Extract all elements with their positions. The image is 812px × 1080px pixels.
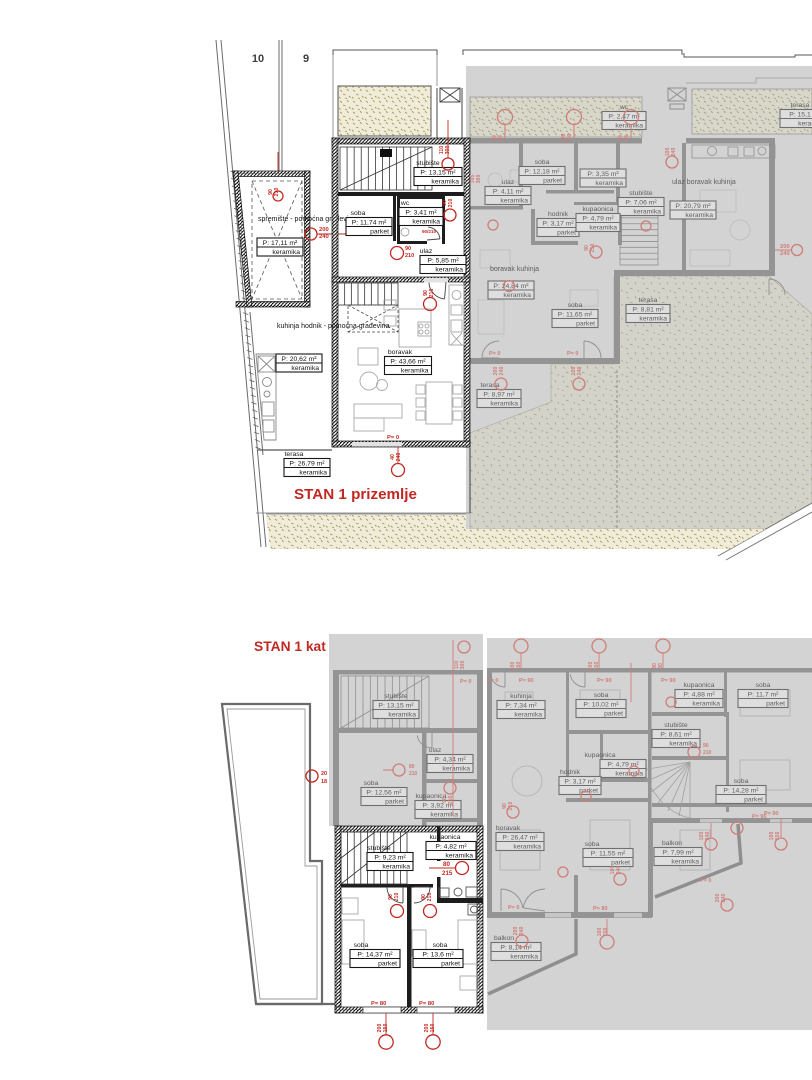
svg-text:P= 80: P= 80 xyxy=(593,906,608,912)
svg-text:P: 7,06 m²: P: 7,06 m² xyxy=(625,200,657,207)
svg-text:P: 8,14 m²: P: 8,14 m² xyxy=(500,945,532,952)
svg-text:P: 4,79 m²: P: 4,79 m² xyxy=(582,216,614,223)
svg-text:200: 200 xyxy=(319,227,329,233)
svg-text:stubište: stubište xyxy=(384,693,408,700)
svg-text:P= 90: P= 90 xyxy=(661,678,676,684)
svg-text:240: 240 xyxy=(519,927,525,936)
svg-text:150: 150 xyxy=(603,928,609,937)
svg-text:boravak kuhinja: boravak kuhinja xyxy=(490,266,539,273)
svg-text:balkon: balkon xyxy=(494,935,514,942)
svg-text:keramika: keramika xyxy=(589,225,617,232)
svg-text:90: 90 xyxy=(498,135,504,141)
svg-text:240: 240 xyxy=(499,367,505,376)
svg-text:keramika: keramika xyxy=(500,198,528,205)
svg-text:P: 7,99 m²: P: 7,99 m² xyxy=(662,850,694,857)
svg-text:parket: parket xyxy=(611,860,630,867)
svg-text:P= 0: P= 0 xyxy=(700,878,711,884)
svg-text:90: 90 xyxy=(624,135,630,141)
svg-text:ulaz: ulaz xyxy=(429,747,442,754)
svg-text:keramika: keramika xyxy=(382,864,410,871)
svg-text:P: 14,28 m²: P: 14,28 m² xyxy=(723,788,759,795)
svg-text:150: 150 xyxy=(567,134,573,143)
svg-text:keramika: keramika xyxy=(685,212,713,219)
svg-text:kupaonica: kupaonica xyxy=(585,752,616,759)
svg-text:P= 0: P= 0 xyxy=(387,435,399,441)
svg-text:150: 150 xyxy=(775,832,781,841)
svg-text:parket: parket xyxy=(604,711,623,718)
svg-text:soba: soba xyxy=(351,210,366,217)
svg-text:ulaz: ulaz xyxy=(420,248,433,255)
svg-text:keramika: keramika xyxy=(692,701,720,708)
svg-text:240: 240 xyxy=(319,234,329,240)
svg-text:keramika: keramika xyxy=(445,853,473,860)
svg-text:wc: wc xyxy=(400,200,410,207)
svg-text:kuhinja hodnik - pomoćna građe: kuhinja hodnik - pomoćna građevina xyxy=(277,323,390,330)
svg-text:P= 80: P= 80 xyxy=(419,1001,434,1007)
svg-text:keramika: keramika xyxy=(595,180,623,187)
svg-text:keramika: keramika xyxy=(412,219,440,226)
svg-text:P: 20,62 m²: P: 20,62 m² xyxy=(281,356,317,363)
svg-text:spremište - pomoćna građevina: spremište - pomoćna građevina xyxy=(258,216,356,223)
svg-text:210: 210 xyxy=(394,893,400,902)
svg-text:parket: parket xyxy=(766,701,785,708)
svg-text:P: 11,7 m²: P: 11,7 m² xyxy=(748,692,780,699)
svg-text:80: 80 xyxy=(409,764,415,770)
svg-text:stubište: stubište xyxy=(629,190,653,197)
svg-text:9: 9 xyxy=(303,53,309,65)
svg-text:P: 8,81 m²: P: 8,81 m² xyxy=(632,307,664,314)
svg-text:P= 0: P= 0 xyxy=(487,678,498,684)
svg-text:hodnik: hodnik xyxy=(560,769,581,776)
svg-text:P: 17,11 m²: P: 17,11 m² xyxy=(263,240,298,247)
svg-text:keramika: keramika xyxy=(510,954,538,961)
svg-text:P: 43,66 m²: P: 43,66 m² xyxy=(390,359,426,366)
svg-text:P: 12,56 m²: P: 12,56 m² xyxy=(366,790,402,797)
svg-text:terasa: terasa xyxy=(285,451,304,458)
svg-text:P: 10,02 m²: P: 10,02 m² xyxy=(583,702,619,709)
svg-text:parket: parket xyxy=(576,321,595,328)
svg-text:ulaz boravak kuhinja: ulaz boravak kuhinja xyxy=(672,179,736,186)
svg-text:balkon: balkon xyxy=(662,840,682,847)
svg-text:P: 13,6 m²: P: 13,6 m² xyxy=(422,952,454,959)
svg-text:P= 90: P= 90 xyxy=(519,678,534,684)
svg-text:keramika: keramika xyxy=(431,179,459,186)
svg-text:210: 210 xyxy=(409,771,418,777)
svg-text:kupaonica: kupaonica xyxy=(684,682,715,689)
svg-text:keramika: keramika xyxy=(490,401,518,408)
svg-text:keramika: keramika xyxy=(272,249,300,256)
svg-text:parket: parket xyxy=(385,799,404,806)
svg-text:P: 11,55 m²: P: 11,55 m² xyxy=(591,851,626,858)
svg-text:keramika: keramika xyxy=(299,470,327,477)
svg-text:keramika: keramika xyxy=(671,859,699,866)
svg-text:soba: soba xyxy=(756,682,771,689)
svg-text:parket: parket xyxy=(441,961,460,968)
svg-text:P: 5,85 m²: P: 5,85 m² xyxy=(427,258,459,265)
svg-text:stubište: stubište xyxy=(416,160,440,167)
svg-text:STAN 1 kat: STAN 1 kat xyxy=(254,639,326,654)
svg-text:240: 240 xyxy=(705,832,711,841)
svg-text:keramika: keramika xyxy=(633,209,661,216)
svg-text:keramika: keramika xyxy=(291,365,319,372)
svg-text:215: 215 xyxy=(442,870,453,877)
svg-text:keram: keram xyxy=(798,121,812,128)
svg-text:STAN 1 prizemlje: STAN 1 prizemlje xyxy=(294,486,417,503)
svg-text:keramika: keramika xyxy=(430,812,458,819)
svg-text:keramika: keramika xyxy=(388,712,416,719)
svg-text:soba: soba xyxy=(594,692,609,699)
svg-text:P: 9,23 m²: P: 9,23 m² xyxy=(374,855,406,862)
svg-text:P: 14,37 m²: P: 14,37 m² xyxy=(357,952,393,959)
svg-text:P: 4,82 m²: P: 4,82 m² xyxy=(435,844,467,851)
svg-text:90/210: 90/210 xyxy=(422,229,436,234)
svg-text:P= 90: P= 90 xyxy=(597,678,612,684)
svg-text:kuhinja: kuhinja xyxy=(510,693,532,700)
svg-text:keramika: keramika xyxy=(639,316,667,323)
svg-text:P: 26,79 m²: P: 26,79 m² xyxy=(289,461,325,468)
svg-text:18: 18 xyxy=(321,779,327,785)
svg-text:hodnik: hodnik xyxy=(548,211,569,218)
svg-text:P: 4,88 m²: P: 4,88 m² xyxy=(683,692,715,699)
svg-text:P: 4,34 m²: P: 4,34 m² xyxy=(434,757,466,764)
svg-text:parket: parket xyxy=(744,797,763,804)
svg-text:soba: soba xyxy=(354,942,369,949)
svg-text:ulaz: ulaz xyxy=(502,179,515,186)
svg-text:210: 210 xyxy=(405,253,414,259)
svg-text:kupaonica: kupaonica xyxy=(583,206,614,213)
svg-text:20: 20 xyxy=(321,771,327,777)
svg-text:terasa: terasa xyxy=(791,102,810,109)
svg-text:P: 8,97 m²: P: 8,97 m² xyxy=(483,392,515,399)
svg-text:P: 24,84 m²: P: 24,84 m² xyxy=(493,283,529,290)
svg-text:240: 240 xyxy=(671,148,677,157)
svg-text:stubište: stubište xyxy=(367,845,391,852)
svg-text:90: 90 xyxy=(405,246,411,252)
svg-text:P: 11,65 m²: P: 11,65 m² xyxy=(558,312,593,319)
svg-text:240: 240 xyxy=(577,367,583,376)
svg-text:80: 80 xyxy=(443,861,450,868)
svg-text:soba: soba xyxy=(364,780,379,787)
svg-text:keramika: keramika xyxy=(513,844,541,851)
svg-text:210: 210 xyxy=(703,750,712,756)
svg-text:kupaonica: kupaonica xyxy=(430,834,461,841)
svg-text:stubište: stubište xyxy=(664,722,688,729)
svg-text:keramika: keramika xyxy=(435,267,463,274)
svg-text:soba: soba xyxy=(433,942,448,949)
svg-text:240: 240 xyxy=(780,251,790,257)
svg-text:P: 26,47 m²: P: 26,47 m² xyxy=(502,835,538,842)
svg-text:210: 210 xyxy=(429,289,435,298)
svg-text:P: 11,74 m²: P: 11,74 m² xyxy=(352,220,387,227)
svg-text:soba: soba xyxy=(734,778,749,785)
svg-text:parket: parket xyxy=(557,230,576,237)
svg-text:150: 150 xyxy=(383,1024,389,1033)
svg-text:P: 3,41 m²: P: 3,41 m² xyxy=(405,210,437,217)
svg-text:210: 210 xyxy=(427,893,433,902)
svg-text:P= 0: P= 0 xyxy=(508,905,519,911)
svg-text:P: 8,61 m²: P: 8,61 m² xyxy=(660,732,692,739)
svg-text:P: 3,17 m²: P: 3,17 m² xyxy=(564,779,596,786)
svg-text:P= 80: P= 80 xyxy=(371,1001,386,1007)
svg-text:210: 210 xyxy=(448,796,454,805)
svg-text:P: 15,1: P: 15,1 xyxy=(789,112,811,119)
svg-text:keramika: keramika xyxy=(503,292,531,299)
svg-text:90: 90 xyxy=(703,743,709,749)
svg-text:P= 0: P= 0 xyxy=(567,351,578,357)
svg-text:terasa: terasa xyxy=(639,297,658,304)
svg-text:P: 13,15 m²: P: 13,15 m² xyxy=(378,703,414,710)
svg-text:keramika: keramika xyxy=(442,766,470,773)
svg-text:P: 20,79 m²: P: 20,79 m² xyxy=(675,203,711,210)
svg-text:parket: parket xyxy=(378,961,397,968)
svg-text:200: 200 xyxy=(780,244,790,250)
svg-text:P: 4,79 m²: P: 4,79 m² xyxy=(607,762,639,769)
svg-text:keramika: keramika xyxy=(514,712,542,719)
svg-text:10: 10 xyxy=(252,53,264,65)
svg-text:240: 240 xyxy=(616,866,622,875)
svg-text:parket: parket xyxy=(370,229,389,236)
svg-text:boravak: boravak xyxy=(388,349,413,356)
svg-text:150: 150 xyxy=(430,1024,436,1033)
svg-text:210: 210 xyxy=(508,802,514,811)
svg-text:P: 12,18 m²: P: 12,18 m² xyxy=(524,169,560,176)
svg-text:P: 4,11 m²: P: 4,11 m² xyxy=(493,189,525,196)
svg-text:P= 0: P= 0 xyxy=(460,679,471,685)
svg-text:210: 210 xyxy=(274,188,280,197)
svg-text:240: 240 xyxy=(721,894,727,903)
svg-text:boravak: boravak xyxy=(496,825,521,832)
svg-text:keramika: keramika xyxy=(401,368,429,375)
svg-text:300: 300 xyxy=(460,661,466,670)
svg-text:210: 210 xyxy=(590,244,596,253)
svg-text:P: 3,17 m²: P: 3,17 m² xyxy=(542,221,574,228)
svg-text:soba: soba xyxy=(568,302,583,309)
svg-text:parket: parket xyxy=(543,178,562,185)
svg-text:P: 7,34 m²: P: 7,34 m² xyxy=(505,703,537,710)
svg-text:P= 90: P= 90 xyxy=(764,811,779,817)
svg-text:P= 0: P= 0 xyxy=(489,351,500,357)
svg-text:soba: soba xyxy=(535,159,550,166)
svg-text:P: 13,15 m²: P: 13,15 m² xyxy=(420,170,456,177)
svg-text:300: 300 xyxy=(476,175,482,184)
svg-text:P: 3,35 m²: P: 3,35 m² xyxy=(587,171,619,178)
svg-text:soba: soba xyxy=(585,841,600,848)
svg-text:240: 240 xyxy=(396,453,402,462)
svg-text:210: 210 xyxy=(448,199,454,208)
